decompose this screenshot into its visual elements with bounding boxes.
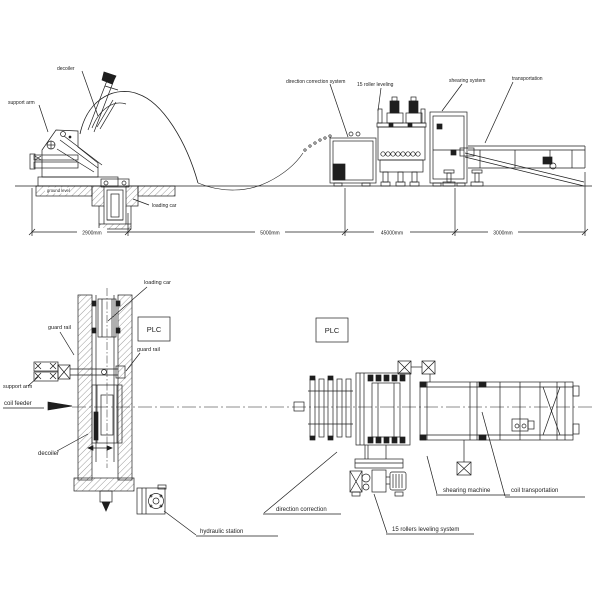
plan-right-labels: direction correction 15 rollers leveling…	[263, 412, 585, 534]
hold-down-mounts	[398, 361, 471, 475]
loading-car-label-plan: loading car	[144, 280, 171, 286]
coil-feeder-arrow	[48, 402, 72, 410]
hydraulic-station-label: hydraulic station	[200, 529, 243, 535]
coil-and-strip	[80, 91, 331, 190]
roller-leveling-label: 15 roller leveling	[357, 82, 394, 88]
plc-label-right: PLC	[325, 326, 340, 335]
guard-rail-left-label: guard rail	[48, 325, 71, 331]
direction-correction-label: direction correction	[276, 507, 327, 513]
leveler-plan	[356, 373, 410, 445]
dimension-3000: 3000mm	[493, 231, 512, 237]
pit-walls	[74, 295, 134, 511]
plc-box-right: PLC	[316, 318, 348, 342]
dimension-45000: 45000mm	[381, 231, 403, 237]
loading-car-label-side: loading car	[152, 203, 177, 209]
shearing-machine-side	[430, 112, 474, 186]
decoiler-mandrel	[88, 72, 118, 132]
direction-correction-machine-side	[330, 132, 376, 186]
decoiler-label-side: decoiler	[57, 66, 75, 72]
coil-transportation-label: coil transportation	[511, 488, 558, 494]
hydraulic-station-unit	[137, 485, 166, 514]
leveler-drive-unit	[350, 445, 406, 496]
ground-foundation	[15, 186, 592, 229]
rollers-leveling-system-label: 15 rollers leveling system	[392, 527, 459, 533]
leveler-machine-side	[377, 97, 426, 186]
guard-rail-right-label: guard rail	[137, 347, 160, 353]
side-elevation-view: 2900mm 5000mm 45000mm 3000mm decoiler su…	[8, 66, 592, 237]
shearing-machine-label: shearing machine	[443, 488, 491, 494]
direction-correction-plan	[294, 376, 353, 440]
decoiler-plan	[88, 385, 122, 450]
plc-label-left: PLC	[147, 325, 162, 334]
shearing-system-label: shearing system	[449, 78, 485, 84]
ground-level-label: ground level	[47, 188, 70, 193]
decoiler-label-plan: decoiler	[38, 451, 59, 457]
plan-left-labels: loading car guard rail guard rail suppor…	[3, 280, 278, 536]
direction-correction-system-label: direction correction system	[286, 79, 345, 85]
loading-car-pit	[101, 179, 129, 220]
dimension-5000: 5000mm	[260, 231, 279, 237]
support-arm-label-plan: support arm	[3, 384, 33, 390]
dimension-2900: 2900mm	[82, 231, 101, 237]
shear-and-transport-plan	[420, 382, 579, 440]
plan-view-decoiler: PLC loading car guard rail guard rail su…	[3, 280, 278, 536]
transportation-label: transportation	[512, 76, 543, 82]
support-arm-label-side: support arm	[8, 100, 35, 106]
support-arm-machine	[30, 130, 118, 186]
plc-box-left: PLC	[138, 317, 170, 341]
coil-feeder-label: coil feeder	[4, 401, 32, 407]
engineering-drawing: 2900mm 5000mm 45000mm 3000mm decoiler su…	[0, 0, 600, 600]
plan-view-line: PLC	[263, 318, 585, 534]
